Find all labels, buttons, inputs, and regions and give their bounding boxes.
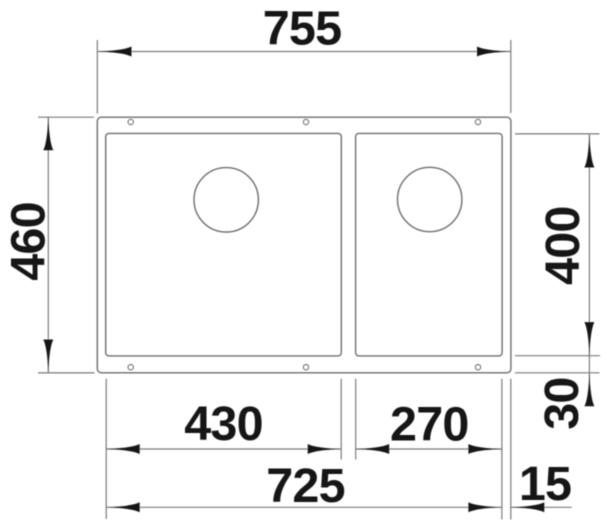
svg-text:15: 15 bbox=[519, 457, 571, 511]
svg-text:460: 460 bbox=[2, 202, 56, 281]
svg-text:755: 755 bbox=[263, 2, 342, 56]
svg-text:270: 270 bbox=[390, 398, 469, 452]
svg-text:30: 30 bbox=[535, 377, 589, 429]
svg-text:725: 725 bbox=[266, 459, 345, 513]
svg-text:400: 400 bbox=[536, 206, 590, 285]
svg-text:430: 430 bbox=[184, 397, 263, 451]
